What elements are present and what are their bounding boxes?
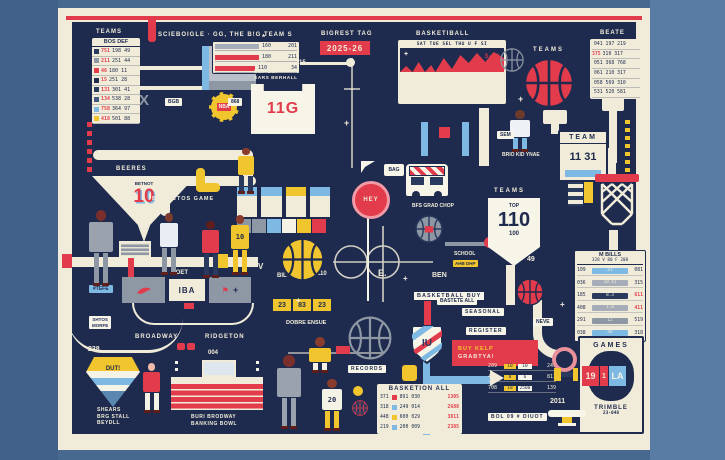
mural-square [282,219,296,233]
jersey-caption-line2: SARS BERHALL [254,76,298,82]
ridgeton-label: RIDGETON [205,334,245,340]
score-strip: 23 83 23 [273,299,331,311]
broadway-label: BROADWAY [135,334,178,340]
m-bills-right: 081 [630,268,643,273]
decoration-text: BEN [432,272,447,279]
beate-cells: 058 569 310 [594,81,626,86]
tag110-number: 110 [498,209,530,231]
games-code: 23-048 [603,411,619,416]
m-bills-chip: 1.0 [592,305,628,311]
stat-bar-row: 708 18 2508 139 [488,385,556,393]
stat-bar-row: 461 8 6 811 [488,374,556,382]
tag110-bottom: 100 [509,231,519,237]
pipe-segment [543,110,567,124]
figure-head [165,213,174,222]
bar-value: 211 [288,54,297,60]
basketball-icon [348,316,392,360]
beate-cells: 041 197 219 [594,42,626,47]
standings-table: BOS DEF 751 198 49 211 251 44 46 180 11 … [92,38,140,124]
legend-a: 318 [380,405,389,410]
player-figure [273,355,305,429]
free-throw-arc [132,303,254,325]
figure-torso: 20 [322,389,342,410]
jersey-right-number: 15 [299,60,306,66]
figure-torso [309,348,331,362]
speech-bubble: BAG [384,164,404,176]
stat-right: 139 [547,385,556,391]
player-figure [157,213,181,275]
bag-label: BAG [388,167,399,173]
bottom-right-text: BURI BRODWAY BANKING BOWL [191,414,237,427]
pipe-segment [506,265,515,305]
standings-values: 251 28 [109,77,127,83]
player-figure [86,210,116,286]
away-score: LA [609,366,626,386]
bar [215,55,259,60]
standings-row: 751 198 49 [92,47,140,57]
decoration-text: * [262,33,265,42]
pipe-segment [148,16,156,42]
score-box: 23 [273,299,291,311]
figure-head [236,215,245,224]
beate-cells: 051 368 768 [594,61,626,66]
legend-c: 029 [411,415,420,420]
sign-line: MORFE [92,323,108,329]
m-bills-right: 315 [630,281,643,286]
bus-wheel-right [434,191,442,199]
pipe-segment [479,108,489,166]
hoop-net-icon [599,182,635,228]
decoration-text: + [344,118,349,128]
figure-head [515,110,524,119]
jersey-shape: 11G [251,84,315,134]
pipe-segment [344,88,360,90]
games-scoreboard: 19 1 LA [582,366,626,386]
pipe-segment [439,127,450,138]
standings-number: 134 [101,96,110,102]
standings-header: BOS DEF [92,38,140,47]
figure-legs [233,250,247,275]
standings-number: 751 [101,48,110,54]
figure-torso [277,368,302,398]
player-tag-label: BRIO KID YNAE [502,152,540,158]
standings-number: 46 [101,68,107,74]
decoration-text: + [403,274,408,283]
basketball-icon [415,215,443,243]
m-bills-left: 036 [577,281,590,286]
stat-left: 461 [488,374,502,380]
games-blob: 19 1 LA [588,351,634,401]
court-panels: IBA ⚑ + [122,277,251,303]
decoration-text: 004 [208,350,218,356]
ban-etos-label: BAN! ETOS GAME [152,196,214,202]
pipe-segment [625,120,630,172]
funnel-caption: BEERES [116,166,147,172]
bottom-right-line: BANKING BOWL [191,421,237,428]
m-bills-left: 291 [577,318,590,323]
decoration-text: 238 [88,346,100,353]
standings-number: 418 [101,116,110,122]
pipe-segment [351,58,353,168]
mural-column [261,187,281,217]
mid-score: 1 [600,366,608,386]
bottom-left-text: SHEARS BRG STALL BEYDLL [97,407,130,427]
figure-legs [282,398,296,429]
hey-label: HEY [363,197,378,203]
figure-head [148,363,156,371]
team-color-swatch [94,107,99,112]
diamond-label: DUT! [106,366,120,372]
beate-row: 375 310 317 [592,50,640,60]
figure-legs [513,138,527,152]
white-chip: 868 [228,98,242,106]
decoration-text: E. [378,268,387,278]
white-chip: BASTETE ALL [437,297,477,305]
area-chart [400,48,504,72]
m-bills-right: 318 [630,331,643,336]
barbell-icon [554,368,580,381]
figure-torso [202,230,220,253]
m-bills-row: 109 41 081 [577,267,643,276]
mural-square [267,219,281,233]
white-chip: BGB [165,98,182,106]
pipe-segment [87,122,92,174]
pipe-segment [353,386,363,396]
standings-row: 758 364 97 [92,105,140,115]
standings-row: 418 501 88 [92,114,140,124]
m-bills-left: 408 [577,306,590,311]
decoration-text: V [258,262,263,271]
legend-b: 891 [400,395,409,400]
legend-card: BASKETION ALL 371 891 030 1305 318 249 0… [377,384,462,434]
calendar-chart: + 3-42 [400,48,504,72]
team-color-swatch [94,87,99,92]
shield-logo: IU [410,324,444,364]
stat-left: 708 [488,385,502,391]
figure-jersey-number: 20 [328,396,336,404]
m-bills-left: 038 [577,331,590,336]
team-color-swatch [94,78,99,83]
team-color-swatch [94,97,99,102]
sign-line: SHTOS [92,317,108,323]
standings-number: 758 [101,106,110,112]
teams-ball-title: TEAMS [533,47,564,53]
legend-swatch [392,405,397,410]
pipe-segment [140,86,202,90]
legend-row: 219 200 009 2385 [380,425,459,430]
white-chip: NEVE [533,318,553,326]
schedule-label: SCIEBOIGLE · [158,32,211,38]
team-color-swatch [94,58,99,63]
bus-window [430,177,443,185]
standings-values: 251 44 [112,58,130,64]
chart-plus-icon: + [404,51,408,58]
figure-torso [143,372,159,392]
school-tag: AHB DHP [453,260,478,267]
mural-column [286,187,306,217]
calendar-card: SAT TUE SEL THU U F SI + 3-42 [398,40,506,104]
jersey-caption: BGF BGI SARS BERHALL [254,70,298,82]
legend-d: 3811 [447,415,459,420]
bar-label: 160 [262,43,271,49]
team-color-swatch [94,49,99,54]
bar-row: 180 211 [215,54,297,62]
player-figure [141,363,162,413]
banner-line2: GRABTYA! [458,354,538,360]
standings-title: TEAMS [96,29,122,35]
bar [215,66,255,71]
standings-number: 15 [101,77,107,83]
m-bills-row: 185 8.3 611 [577,292,643,301]
figure-head [96,210,107,221]
school-label: SCHOOL [454,251,475,257]
stat-chip1: 10 [504,364,516,369]
funnel-hopper [119,241,151,258]
figure-torso: 10 [231,225,250,249]
standings-values: 364 97 [112,106,130,112]
bird-logo-icon [135,284,153,296]
sign-box: SHTOS MORFE [89,316,111,329]
games-title: GAMES [593,342,629,349]
beate-title: BEATE [600,30,625,36]
standings-row: 134 538 28 [92,95,140,105]
pipe-segment [421,122,428,156]
bottom-right-line: BURI BRODWAY [191,414,237,421]
bar-row: 160 201 [215,43,297,51]
beate-row: 531 520 581 [592,88,640,98]
legend-a: 219 [380,425,389,430]
beate-cells: 061 210 317 [594,71,626,76]
legend-b: 200 [400,425,409,430]
standings-row: 131 301 41 [92,86,140,96]
standings-row: 46 180 11 [92,66,140,76]
stat-chip1: 18 [504,386,516,391]
beate-row: 058 569 310 [592,79,640,89]
m-bills-chip: 10.41 [592,280,628,286]
pipe-segment [462,122,469,156]
background-left-strip [0,0,58,460]
stat-chip2: 2508 [518,386,532,391]
season-badge: 2025-26 [320,41,370,55]
legend-row: 448 600 029 3811 [380,415,459,420]
beate-cells: 531 520 581 [594,90,626,95]
standings-number: 211 [101,58,110,64]
team-score-value: 11 31 [570,144,597,170]
figure-head [242,148,249,155]
basketball-icon [280,237,325,282]
games-card: GAMES 19 1 LA TRIMBLE 23-048 [578,336,644,434]
standings-row: 15 251 28 [92,76,140,86]
standings-values: 301 41 [112,87,130,93]
decoration-text: + [560,300,565,309]
m-bills-left: 185 [577,293,590,298]
jersey-number: 11G [267,100,299,118]
beate-red-cell: 375 [592,52,601,57]
legend-c: 030 [411,395,420,400]
figure-torso [160,223,179,248]
flag-icon: ⚑ [222,286,229,295]
mural-square [312,219,326,233]
figure-legs [313,363,327,373]
player-figure: 10 [228,215,252,275]
team-color-swatch [94,116,99,121]
infographic-stage: TEAMS BOS DEF 751 198 49 211 251 44 46 1… [0,0,725,460]
team-color-swatch [94,68,99,73]
basketball-icon [516,278,544,306]
stat-chip2: 10 [518,364,532,369]
decoration-text: X [139,92,149,109]
beate-row: 051 368 768 [592,59,640,69]
stat-chip1: 8 [504,375,516,380]
decoration-text: 2011 [550,398,565,405]
bol-chip: BOL 09 # DIUOT [488,413,547,421]
player-figure: 20 [319,379,345,431]
legend-swatch [392,415,397,420]
pipe-segment [430,376,490,384]
figure-legs [162,248,176,275]
bleachers-top-band [171,357,263,377]
beate-row: 041 197 219 [592,40,640,50]
figure-head [283,355,295,367]
figure-head [327,379,336,388]
bigrest-label: BIGREST TAG [321,31,373,37]
logo-card-stripe [202,46,209,90]
legend-row: 371 891 030 1305 [380,395,459,400]
decoration-text: 49 [527,256,535,263]
basketball-icon [523,57,575,109]
legend-a: 448 [380,415,389,420]
jersey-left-number: 20 [259,60,266,66]
team-score-title: TEAM [560,132,606,144]
seasonal-chip: SEASONAL [462,308,504,316]
decoration-text: + [296,296,301,305]
standings-values: 501 88 [112,116,130,122]
figure-head [206,221,214,229]
legend-a: 371 [380,395,389,400]
figure-head [315,337,325,347]
mural-square [252,219,266,233]
bar-value: 201 [288,43,297,49]
m-bills-chip: 8.3 [592,293,628,299]
decoration-text: + [518,94,523,104]
beate-table: 041 197 219 375 310 317 051 368 768 061 … [590,39,642,99]
figure-torso [238,156,254,174]
pipe-segment [402,365,417,381]
m-bills-right: 611 [630,293,643,298]
plus-icon: + [233,285,238,295]
scoreboard-screen [202,360,236,377]
pipe-segment [62,254,72,268]
figure-jersey-number: 10 [236,233,244,241]
figure-legs [145,393,159,413]
stat-chip2: 6 [518,375,532,380]
hey-stop-circle: HEY [352,181,390,219]
bar [215,44,259,49]
m-bills-right: 519 [630,318,643,323]
legend-swatch [392,395,397,400]
court-panel-right: ⚑ + [209,277,251,303]
legend-d: 1305 [447,395,459,400]
nba-sunburst-badge: NBA [209,92,239,122]
legend-c: 014 [411,405,420,410]
standings-values: 198 49 [112,48,130,54]
m-bills-table: M BILLS 328 V 80 F 208 109 41 081 036 10… [574,250,646,342]
chart-note: 3-42 [485,53,499,60]
bottom-left-line: BEYDLL [97,420,130,427]
white-chip: SEM [497,131,514,139]
player-figure [199,221,222,278]
standings-values: 538 28 [112,96,130,102]
hoop-rim [595,174,639,182]
bus-illustration [406,164,448,196]
beate-cells: 310 317 [603,52,623,57]
m-bills-chip: 41 [592,268,628,274]
bus-awning [409,166,445,176]
blue-tag-chip: #TEFE [89,285,113,293]
legend-d: 2688 [447,405,459,410]
legend-d: 2385 [447,425,459,430]
register-chip: REGISTER [466,327,506,335]
dobre-label: DOBRE ENSUE [286,320,326,326]
basketball-icon [352,400,368,416]
m-bills-chip: 12 [592,318,628,324]
bus-label: BFS GRAD CHOP [412,203,454,209]
mural-column [310,187,330,217]
figure-legs [204,254,218,278]
glasses-icon [176,337,196,355]
stat-left: 209 [488,363,502,369]
logo-card-band [209,81,256,90]
standings-values: 180 11 [109,68,127,74]
m-bills-left: 109 [577,268,590,273]
bleachers-rows [171,384,263,410]
court-panel-left [122,277,165,303]
figure-legs [239,176,253,194]
player-figure [236,148,256,194]
score-box: 23 [313,299,331,311]
bus-windshield [411,177,424,185]
bus-wheel-left [412,191,420,199]
figure-legs [94,253,108,286]
pipe-segment [140,66,202,70]
pipe-segment [602,97,624,111]
pipe-segment [93,150,253,160]
court-center-box: IBA [167,277,207,303]
figure-torso [89,222,112,252]
stat-bar-row: 209 10 10 249 [488,363,556,371]
legend-b: 249 [400,405,409,410]
iba-label: IBA [179,286,196,295]
stat-bars: 209 10 10 249 461 8 6 811 708 18 2508 13… [488,363,556,393]
mural-square [297,219,311,233]
big-team-chart-title: GG, THE B!G TEAM S [213,32,293,38]
m-bills-head: 328 V 80 F 208 [577,258,643,265]
records-chip: RECORDS [348,365,386,373]
trophy-icon [548,410,586,426]
pipe-segment [196,183,220,192]
player-figure [306,337,334,373]
legend-c: 009 [411,425,420,430]
m-bills-row: 408 1.0 411 [577,304,643,313]
legend-row: 318 249 014 2688 [380,405,459,410]
m-bills-right: 411 [630,306,643,311]
calendar-title: BASKETIBALL [416,31,469,37]
background-right-panel [650,0,725,460]
m-bills-row: 291 12 519 [577,317,643,326]
legend-swatch [392,425,397,430]
shield-text: IU [422,338,432,349]
pennant-flag-icon [361,161,375,173]
